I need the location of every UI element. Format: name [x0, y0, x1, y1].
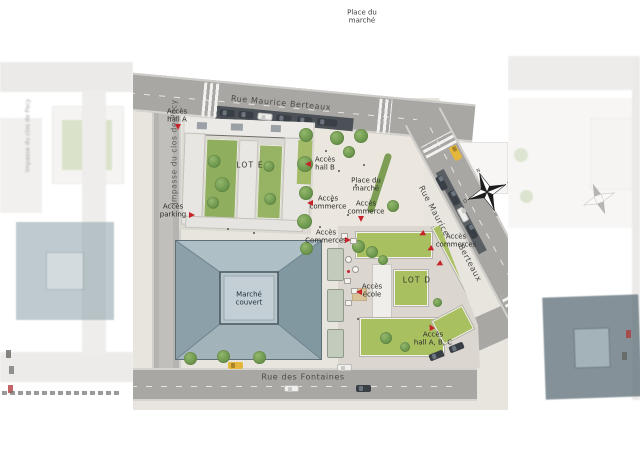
top-area-label: Place dumarché — [347, 9, 377, 24]
tree — [400, 342, 410, 352]
access-arrow-icon — [358, 216, 364, 222]
access-label-commerces-marche: AccèsCommerces — [305, 229, 347, 244]
faded-road — [508, 56, 640, 90]
faded-market-roof-center — [46, 252, 84, 290]
svg-text:E: E — [507, 181, 508, 188]
carousel-next-image[interactable] — [508, 0, 640, 470]
lot-e-block — [179, 118, 315, 235]
street-label-fontaines: Rue des Fontaines — [261, 373, 344, 382]
market-canopy — [327, 289, 344, 322]
car — [228, 362, 243, 369]
faded-street-label: Impasse du clos de Pacy — [25, 94, 32, 178]
watermark-text — [2, 391, 120, 395]
pedestrian — [363, 164, 365, 166]
faded-car — [9, 366, 14, 374]
access-label-hall-abc: Accèshall A, B, C — [414, 331, 452, 346]
marche-couvert-label: Marchécouvert — [236, 291, 263, 306]
market-umbrella — [345, 256, 352, 263]
pedestrian — [325, 150, 327, 152]
rooftop-unit — [271, 125, 281, 132]
faded-market-roof — [542, 294, 640, 399]
tree — [343, 146, 355, 158]
tree — [299, 128, 313, 142]
faded-road — [0, 62, 133, 92]
pedestrian — [357, 318, 359, 320]
faded-tree — [520, 190, 533, 203]
rooftop-unit — [231, 123, 243, 130]
tree — [354, 129, 368, 143]
market-canopy — [327, 248, 344, 281]
lot-e-label: LOT E — [236, 161, 264, 170]
faded-car — [622, 352, 627, 360]
tree — [253, 351, 266, 364]
car — [356, 385, 371, 392]
faded-compass-icon — [578, 178, 620, 220]
car — [219, 109, 235, 117]
compass-icon: N E S O — [461, 166, 508, 218]
faded-market-roof-center — [573, 327, 610, 368]
place-du-marche-label: Place dumarché — [351, 177, 381, 192]
stall-marker — [347, 270, 350, 273]
pedestrian — [253, 232, 255, 234]
access-label-parking: Accèsparking — [160, 203, 187, 218]
car — [284, 385, 299, 392]
faded-road — [0, 352, 133, 382]
faded-plan-right — [508, 0, 640, 470]
pedestrian — [338, 170, 340, 172]
svg-text:O: O — [463, 198, 469, 205]
access-arrow-icon — [175, 124, 181, 130]
car — [337, 364, 352, 371]
rooftop-unit — [197, 122, 207, 129]
faded-car — [6, 350, 11, 358]
access-label-ecole: Accèsécole — [362, 283, 382, 298]
faded-building — [0, 118, 42, 213]
lot-e-courtyard-east — [256, 144, 283, 219]
tree — [433, 298, 442, 307]
access-arrow-icon — [345, 237, 351, 243]
access-label-hall-b: Accèshall B — [315, 156, 335, 171]
pedestrian — [227, 228, 229, 230]
lot-d-label: LOT D — [403, 276, 432, 285]
crosswalk — [376, 99, 392, 134]
access-label-commerces-right: Accèscommerces — [436, 233, 477, 248]
plan-viewer: Impasse du clos de Pacy — [0, 0, 640, 470]
faded-car — [626, 330, 631, 338]
market-stall — [345, 300, 352, 306]
crosswalk — [501, 281, 508, 308]
tree — [366, 246, 378, 258]
market-stall — [344, 278, 351, 284]
access-label-commerce-mid: Accèscommerce — [348, 200, 385, 215]
access-label-commerce-west: Accèscommerce — [310, 195, 347, 210]
tree — [378, 255, 388, 265]
access-arrow-icon — [305, 161, 311, 167]
faded-tree — [514, 148, 528, 162]
tree — [380, 332, 392, 344]
tree — [387, 200, 399, 212]
car — [238, 111, 254, 119]
access-label-hall-a: Accèshall A — [167, 108, 187, 123]
access-arrow-icon — [189, 212, 195, 218]
tree — [297, 214, 312, 229]
faded-market-roof — [16, 222, 114, 320]
access-arrow-icon — [307, 200, 313, 206]
market-canopy — [327, 329, 344, 358]
carousel-prev-image[interactable]: Impasse du clos de Pacy — [0, 0, 133, 470]
market-stall — [350, 238, 357, 244]
site-plan-image[interactable]: LOT E Marchécouvert — [133, 0, 508, 470]
compass-n: N — [476, 167, 481, 174]
tree — [330, 131, 344, 145]
lot-e-center-wing — [236, 140, 258, 221]
access-arrow-icon — [356, 289, 362, 295]
tree — [217, 350, 230, 363]
car — [449, 144, 463, 161]
market-umbrella — [352, 266, 359, 273]
crosswalk — [201, 82, 220, 117]
svg-text:S: S — [494, 211, 499, 218]
tree — [184, 352, 197, 365]
